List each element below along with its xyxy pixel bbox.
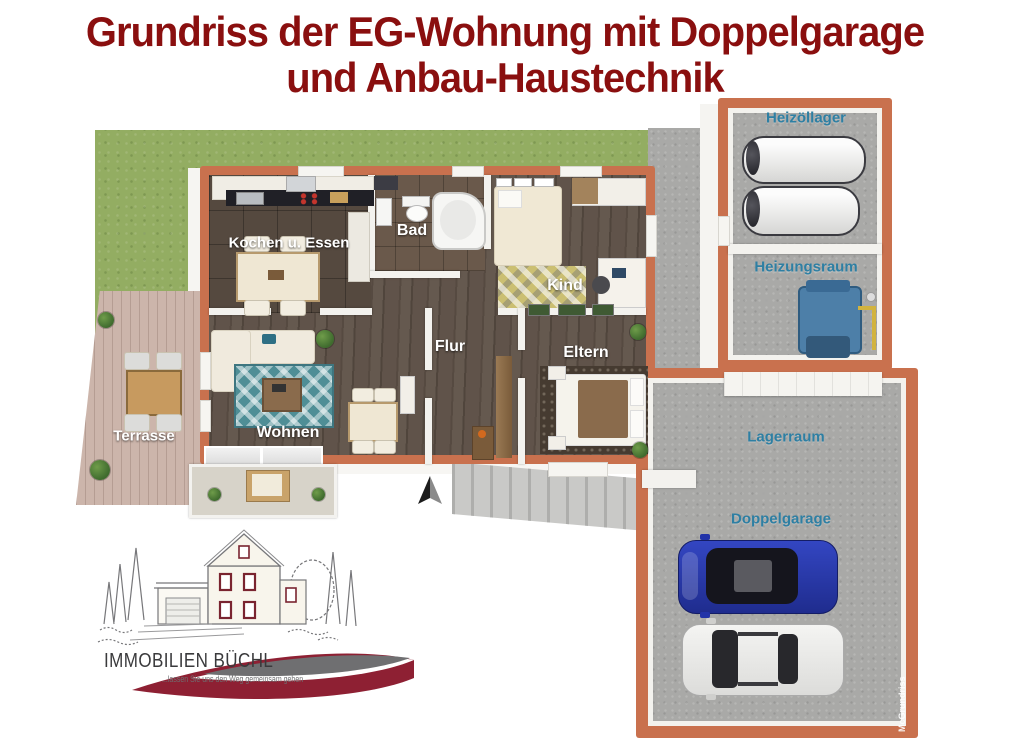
car-blue-sunroof xyxy=(734,560,772,592)
wall-living-hall-1 xyxy=(425,308,432,370)
cooktop xyxy=(298,192,320,205)
page-title-line2: und Anbau-Haustechnik xyxy=(25,54,985,102)
eltern-plant xyxy=(632,442,648,458)
coffee-table-decor xyxy=(272,384,286,392)
small-chair xyxy=(352,388,374,402)
oil-tank-2-cap xyxy=(746,191,760,227)
table-centerpiece xyxy=(268,270,284,280)
bathroom-sink xyxy=(376,198,392,226)
bathtub-basin xyxy=(440,200,476,240)
annex-door-west xyxy=(718,216,730,246)
living-plant xyxy=(316,330,334,348)
terrace-plant xyxy=(98,312,114,328)
terrace-plant xyxy=(90,460,110,480)
room-label-bad: Bad xyxy=(397,222,427,240)
kind-window-east xyxy=(646,215,657,257)
room-label-kochen: Kochen u. Essen xyxy=(229,235,350,252)
wall-kitchen-living-2 xyxy=(320,308,372,315)
kind-desk-chair xyxy=(592,276,610,294)
room-label-heizoellager: Heizöllager xyxy=(766,110,846,127)
terrace-chair xyxy=(156,352,182,370)
boiler-pipe-v xyxy=(872,306,876,350)
page-title-line1: Grundriss der EG-Wohnung mit Doppelgarag… xyxy=(25,8,985,56)
kind-pillow xyxy=(498,190,522,208)
kind-window-north xyxy=(560,166,602,177)
room-label-flur: Flur xyxy=(435,338,465,356)
hall-wardrobe xyxy=(496,356,512,458)
small-chair xyxy=(352,440,374,454)
wall-hall-eltern-2 xyxy=(518,378,525,464)
car-white-side-window xyxy=(738,632,778,636)
annex-west-wall-face xyxy=(700,104,720,370)
room-label-wohnen: Wohnen xyxy=(257,424,320,442)
car-white-windshield xyxy=(712,630,738,688)
windowsill-plant-box xyxy=(558,304,586,316)
north-arrow xyxy=(412,476,448,506)
small-chair xyxy=(374,440,396,454)
room-label-doppelgarage: Doppelgarage xyxy=(731,511,831,528)
kind-shelf xyxy=(496,178,512,187)
boiler-valve xyxy=(866,292,876,302)
watermark: McGrundriss xyxy=(897,676,907,732)
eltern-plant xyxy=(630,324,646,340)
oil-tank-1 xyxy=(742,136,866,184)
eltern-pillow xyxy=(630,378,644,406)
porch-plant xyxy=(312,488,325,501)
shower xyxy=(374,176,398,190)
room-label-heizungsraum: Heizungsraum xyxy=(754,259,857,276)
terrace-chair xyxy=(124,352,150,370)
oil-tank-1-cap xyxy=(746,141,760,175)
wall-bath-south xyxy=(368,271,460,278)
sofa-cushion xyxy=(262,334,276,344)
kitchen-tall-cabinet xyxy=(348,212,370,282)
kitchen-sink xyxy=(236,192,264,205)
dining-chair xyxy=(244,300,270,316)
lagerraum-step-wall xyxy=(642,470,696,488)
wall-hall-eltern-1 xyxy=(518,308,525,350)
windowsill-plant-box xyxy=(528,304,550,316)
eltern-window-bay xyxy=(548,462,608,477)
dining-chair xyxy=(280,300,306,316)
eltern-pillow xyxy=(630,410,644,438)
small-chair xyxy=(374,388,396,402)
logo-tagline: ...lassen Sie uns den Weg gemeinsam gehe… xyxy=(162,674,303,684)
eltern-duvet xyxy=(578,380,628,438)
kind-laptop xyxy=(612,268,626,278)
company-logo: IMMOBILIEN BÜCHL ...lassen Sie uns den W… xyxy=(92,524,414,710)
terrace-table xyxy=(126,370,182,416)
floor-plan-page: Grundriss der EG-Wohnung mit Doppelgarag… xyxy=(0,0,1010,740)
car-blue-mirror xyxy=(700,534,710,540)
small-table xyxy=(348,402,398,442)
car-white-mirror xyxy=(706,694,716,700)
entrance-door xyxy=(452,166,484,177)
room-label-eltern: Eltern xyxy=(563,344,608,362)
windowsill-plant-box xyxy=(592,304,614,316)
porch-bench-cushion xyxy=(252,474,282,496)
living-window-west-1 xyxy=(200,352,211,390)
living-sideboard xyxy=(400,376,415,414)
kind-shelf xyxy=(514,178,532,187)
hall-console-decor xyxy=(478,430,486,438)
boiler-top xyxy=(806,280,850,292)
nightstand xyxy=(548,436,566,450)
kind-shelf xyxy=(534,178,554,187)
car-white-mirror xyxy=(706,618,716,624)
room-label-terrasse: Terrasse xyxy=(113,428,174,445)
cutting-board xyxy=(330,192,348,203)
living-window-west-2 xyxy=(200,400,211,432)
kind-wardrobe-wood xyxy=(572,178,598,204)
toilet xyxy=(406,205,428,222)
wall-living-hall-2 xyxy=(425,398,432,464)
boiler-base xyxy=(806,336,850,358)
room-label-lagerraum: Lagerraum xyxy=(747,429,825,446)
car-white-rear-glass xyxy=(778,634,798,684)
car-white-side-window xyxy=(738,682,778,686)
nightstand xyxy=(548,366,566,380)
car-blue-hood-highlight xyxy=(682,552,698,600)
lagerraum-north-wall xyxy=(724,372,882,396)
wall-kind-eltern-1 xyxy=(498,308,520,315)
wall-heizoel-heizung xyxy=(728,244,882,254)
extractor-hood xyxy=(286,176,316,192)
room-label-kind: Kind xyxy=(547,277,583,295)
logo-company-name: IMMOBILIEN BÜCHL xyxy=(104,650,273,673)
porch-plant xyxy=(208,488,221,501)
